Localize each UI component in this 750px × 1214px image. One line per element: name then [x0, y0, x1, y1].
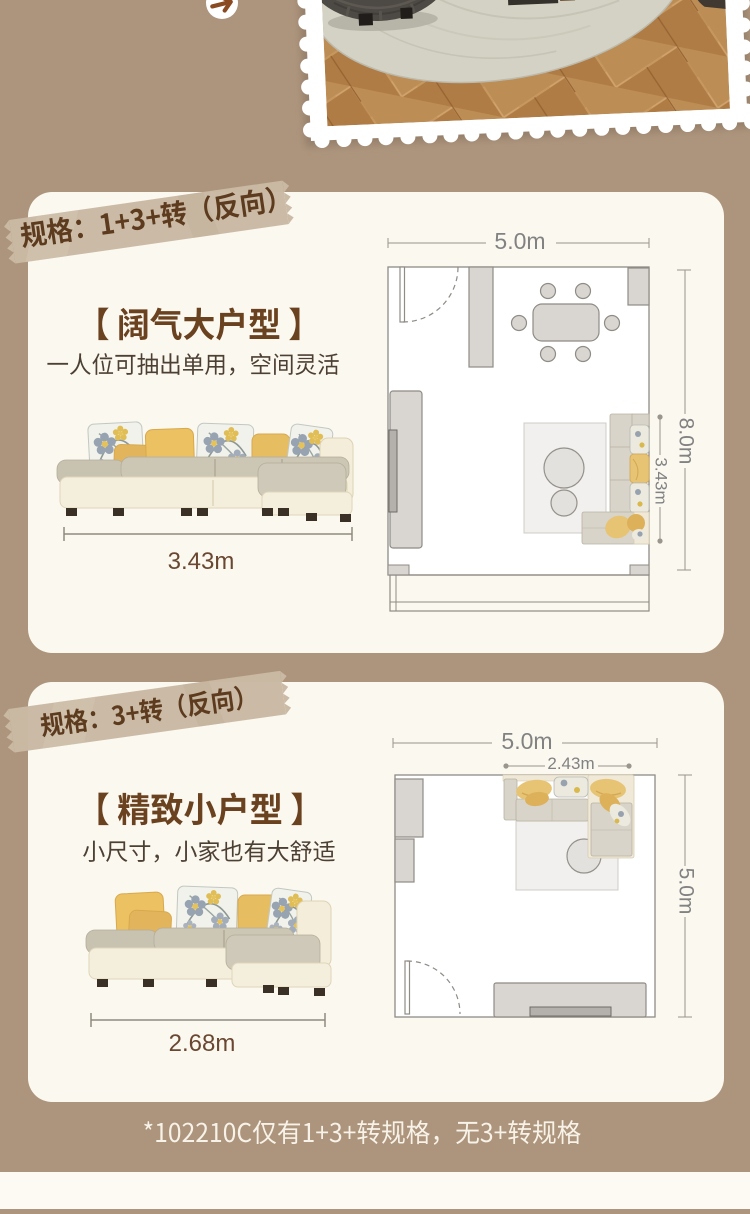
svg-text:5.0m: 5.0m	[494, 228, 545, 254]
svg-text:3.43m: 3.43m	[652, 457, 671, 504]
svg-text:2.43m: 2.43m	[547, 754, 594, 773]
svg-text:3.43m: 3.43m	[168, 548, 235, 575]
svg-text:8.0m: 8.0m	[674, 418, 697, 465]
svg-text:5.0m: 5.0m	[501, 728, 552, 754]
svg-text:5.0m: 5.0m	[674, 868, 697, 915]
svg-text:2.68m: 2.68m	[169, 1030, 236, 1057]
